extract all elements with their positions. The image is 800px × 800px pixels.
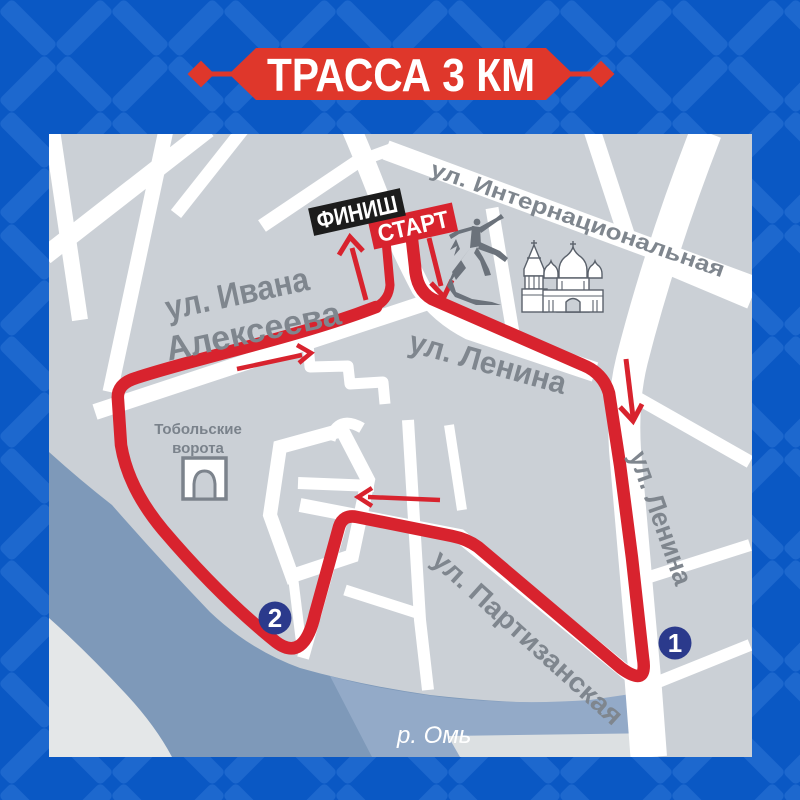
svg-text:р. Омь: р. Омь: [396, 722, 471, 749]
svg-text:ворота: ворота: [172, 440, 224, 457]
svg-text:2: 2: [268, 603, 282, 633]
svg-text:1: 1: [668, 628, 682, 658]
svg-text:ТРАССА 3 КМ: ТРАССА 3 КМ: [267, 49, 535, 101]
svg-text:Тобольские: Тобольские: [154, 421, 242, 438]
